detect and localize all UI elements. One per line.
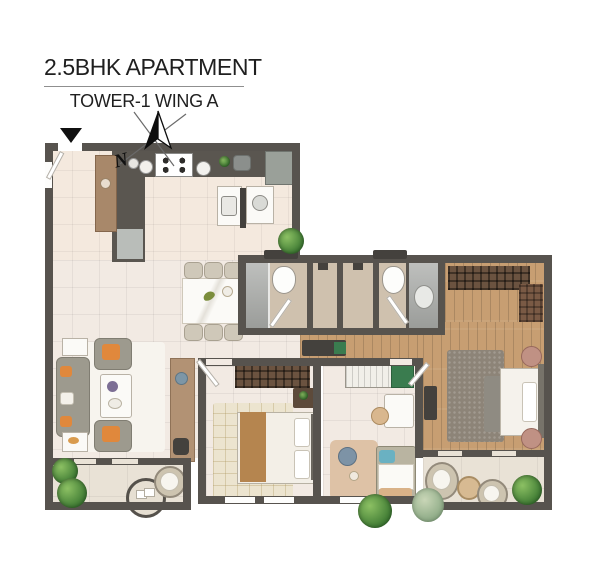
north-compass-icon: N [112, 108, 192, 170]
bathroom2-basin [414, 285, 434, 309]
bedroom2-door-opening [206, 359, 232, 365]
dining-chair [204, 262, 223, 279]
entrance-marker-icon [60, 128, 82, 143]
single-bed-blanket [378, 464, 414, 490]
bedroom2-window-2 [264, 497, 294, 503]
master-balcony-plant-icon [512, 475, 542, 505]
sofa-cushion-orange [60, 366, 72, 377]
dining-chair [184, 324, 203, 341]
side-table-top [62, 338, 88, 356]
coffee-table-plant [107, 381, 118, 392]
master-balcony-opening-2 [492, 451, 516, 456]
entrance-opening [58, 143, 82, 151]
master-wardrobe [448, 266, 530, 290]
plan-header: 2.5BHK APARTMENT TOWER-1 WING A [44, 54, 244, 112]
halfroom-shelf [345, 364, 393, 388]
passage-console-green [334, 342, 346, 354]
master-bed-pillow [522, 382, 537, 422]
master-balcony-chair1-cushion [432, 469, 451, 490]
bath-wall-b-left [373, 263, 379, 328]
master-balcony-pale-plant-icon [412, 488, 444, 522]
dining-chair [184, 262, 203, 279]
master-wall-console [424, 386, 437, 420]
bathroom2-toilet [382, 266, 405, 294]
sofa-cushion-orange2 [60, 416, 72, 427]
master-balcony-chair2-cushion [483, 485, 500, 502]
counter-appliance [233, 155, 251, 171]
dress-strip-1 [313, 263, 337, 328]
wall-outer-left [45, 143, 53, 510]
living-balcony-plant-2-icon [57, 478, 87, 508]
page-title: 2.5BHK APARTMENT [44, 54, 244, 87]
side-table-snack [68, 437, 79, 444]
dining-plate [222, 286, 233, 297]
fridge [116, 228, 144, 260]
coffee-table-plate [108, 398, 122, 409]
bedroom2-bed-runner [240, 412, 266, 482]
play-toy-small [349, 471, 359, 481]
bottom-center-plant-icon [358, 494, 392, 528]
wicker-chair-cushion [160, 472, 179, 491]
bathroom2-niche [373, 250, 407, 259]
desk-laptop [173, 438, 189, 455]
wall-right-master [544, 255, 552, 510]
play-toy-round [338, 447, 357, 466]
nightstand-plant-icon [299, 391, 308, 400]
wall-balcony-left-right [183, 458, 191, 510]
wall-bedroom2-right [313, 358, 321, 504]
master-plaid-unit [519, 284, 543, 322]
sofa-cushion-white [60, 392, 74, 405]
bathroom1-toilet [272, 266, 296, 294]
bedroom2-pillow-1 [294, 418, 310, 447]
kitchen-corner-plant-icon [278, 228, 304, 254]
master-sidetable-top [521, 346, 542, 367]
halfroom-door-opening [390, 359, 412, 365]
master-sidetable-bottom [521, 428, 542, 449]
coffee-table [100, 374, 132, 418]
strip1-hook [318, 263, 328, 270]
armchair-bottom-cushion [102, 426, 120, 442]
wall-bedroom2-left [198, 358, 206, 504]
north-label: N [112, 149, 131, 170]
dining-table [182, 278, 244, 324]
bath-wall-left [238, 255, 246, 335]
bedroom2-wardrobe [235, 366, 310, 388]
console-decor [100, 178, 111, 189]
single-bed-pillow-teal [379, 450, 395, 463]
bedroom2-window-1 [225, 497, 255, 503]
living-balcony-opening-1 [74, 459, 96, 464]
utility-sink-bowl [221, 196, 237, 216]
kitchen-sink-round [196, 161, 211, 176]
armchair-top-cushion [102, 344, 120, 360]
halfroom-desk-chair [371, 407, 389, 425]
strip2-hook [353, 263, 363, 270]
pouf-book-2 [144, 488, 155, 497]
bath-wall-a-right [307, 263, 313, 328]
bathroom1-shower [246, 263, 270, 328]
bath-wall-strips [337, 263, 343, 328]
halfroom-desk [384, 394, 414, 428]
dress-strip-2 [343, 263, 373, 328]
floor-plan-page: 2.5BHK APARTMENT TOWER-1 WING A N [0, 0, 615, 570]
bedroom2-pillow-2 [294, 450, 310, 479]
counter-plant-icon [219, 156, 230, 167]
desk-lamp [175, 372, 188, 385]
living-balcony-opening-2 [112, 459, 138, 464]
bath-wall-bottom [238, 328, 445, 335]
dining-chair [204, 324, 223, 341]
master-wall-left-upper [438, 263, 445, 328]
master-balcony-opening-1 [438, 451, 462, 456]
washing-machine-drum [252, 195, 268, 211]
